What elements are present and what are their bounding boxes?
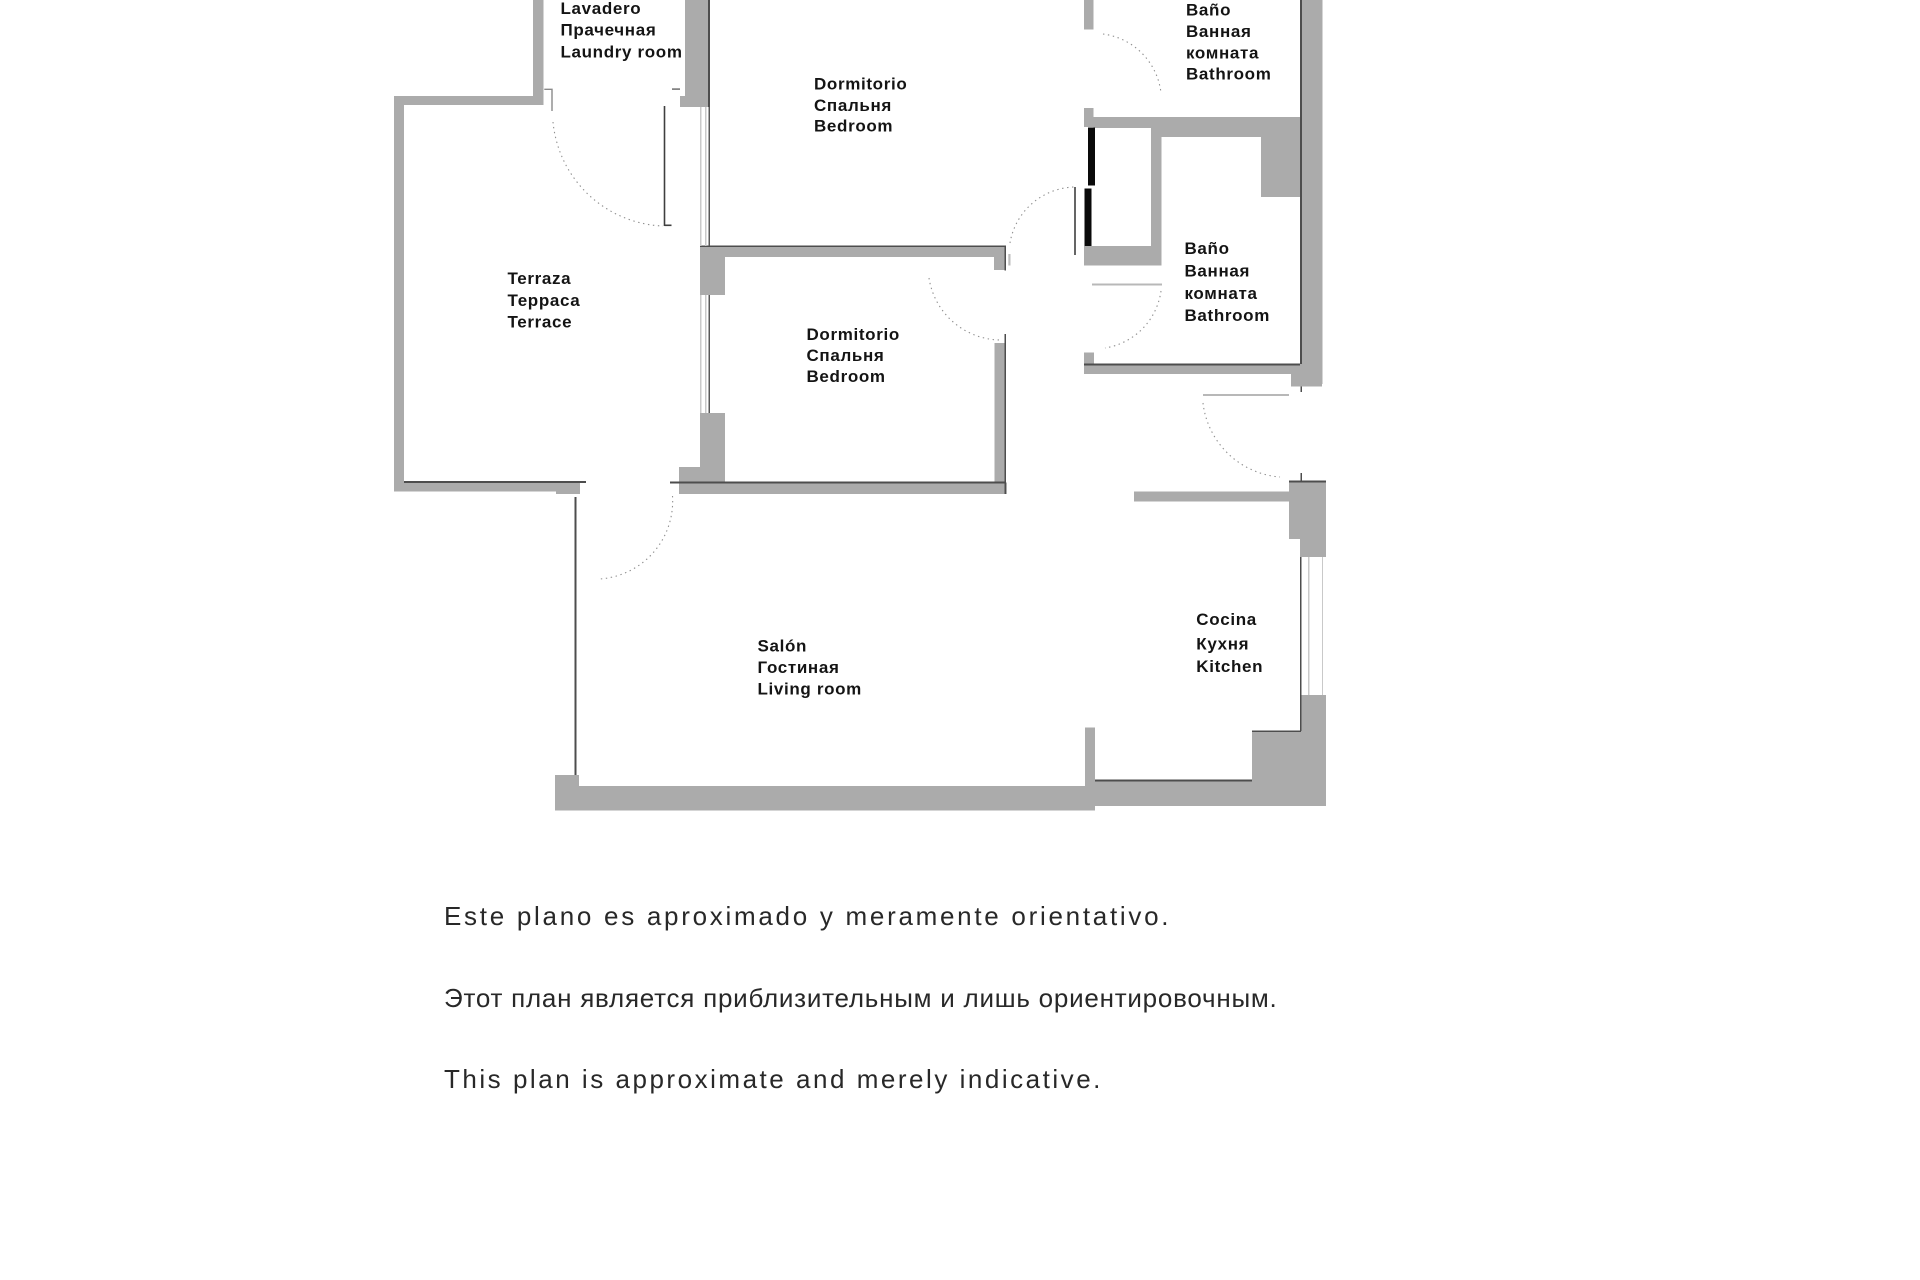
svg-text:This plan is approximate and m: This plan is approximate and merely indi… [444,1064,1103,1094]
svg-text:Ванная: Ванная [1185,262,1251,281]
svg-text:Dormitorio: Dormitorio [814,75,907,94]
svg-text:Este plano es aproximado y mer: Este plano es aproximado y meramente ori… [444,901,1171,931]
svg-text:Прачечная: Прачечная [561,21,657,40]
svg-text:Терраса: Терраса [508,291,581,310]
svg-text:Living room: Living room [758,680,862,699]
svg-text:Cocina: Cocina [1196,610,1257,629]
svg-text:Кухня: Кухня [1196,635,1249,654]
svg-text:Этот план является приблизител: Этот план является приблизительным и лиш… [444,983,1278,1013]
svg-text:Спальня: Спальня [807,346,885,365]
svg-text:комната: комната [1185,284,1258,303]
svg-text:Bedroom: Bedroom [807,367,886,386]
svg-text:Bathroom: Bathroom [1185,306,1270,325]
svg-text:комната: комната [1186,43,1259,62]
svg-text:Terrace: Terrace [508,313,573,332]
svg-text:Dormitorio: Dormitorio [807,325,900,344]
svg-text:Lavadero: Lavadero [561,0,642,18]
svg-text:Bathroom: Bathroom [1186,65,1271,84]
svg-text:Salón: Salón [758,636,808,655]
svg-text:Baño: Baño [1186,1,1231,20]
svg-text:Bedroom: Bedroom [814,117,893,136]
svg-text:Laundry room: Laundry room [561,42,683,61]
svg-text:Baño: Baño [1185,239,1230,258]
svg-text:Terraza: Terraza [508,269,572,288]
svg-text:Спальня: Спальня [814,96,892,115]
svg-text:Ванная: Ванная [1186,22,1252,41]
svg-text:Гостиная: Гостиная [758,658,840,677]
svg-text:Kitchen: Kitchen [1196,657,1263,676]
